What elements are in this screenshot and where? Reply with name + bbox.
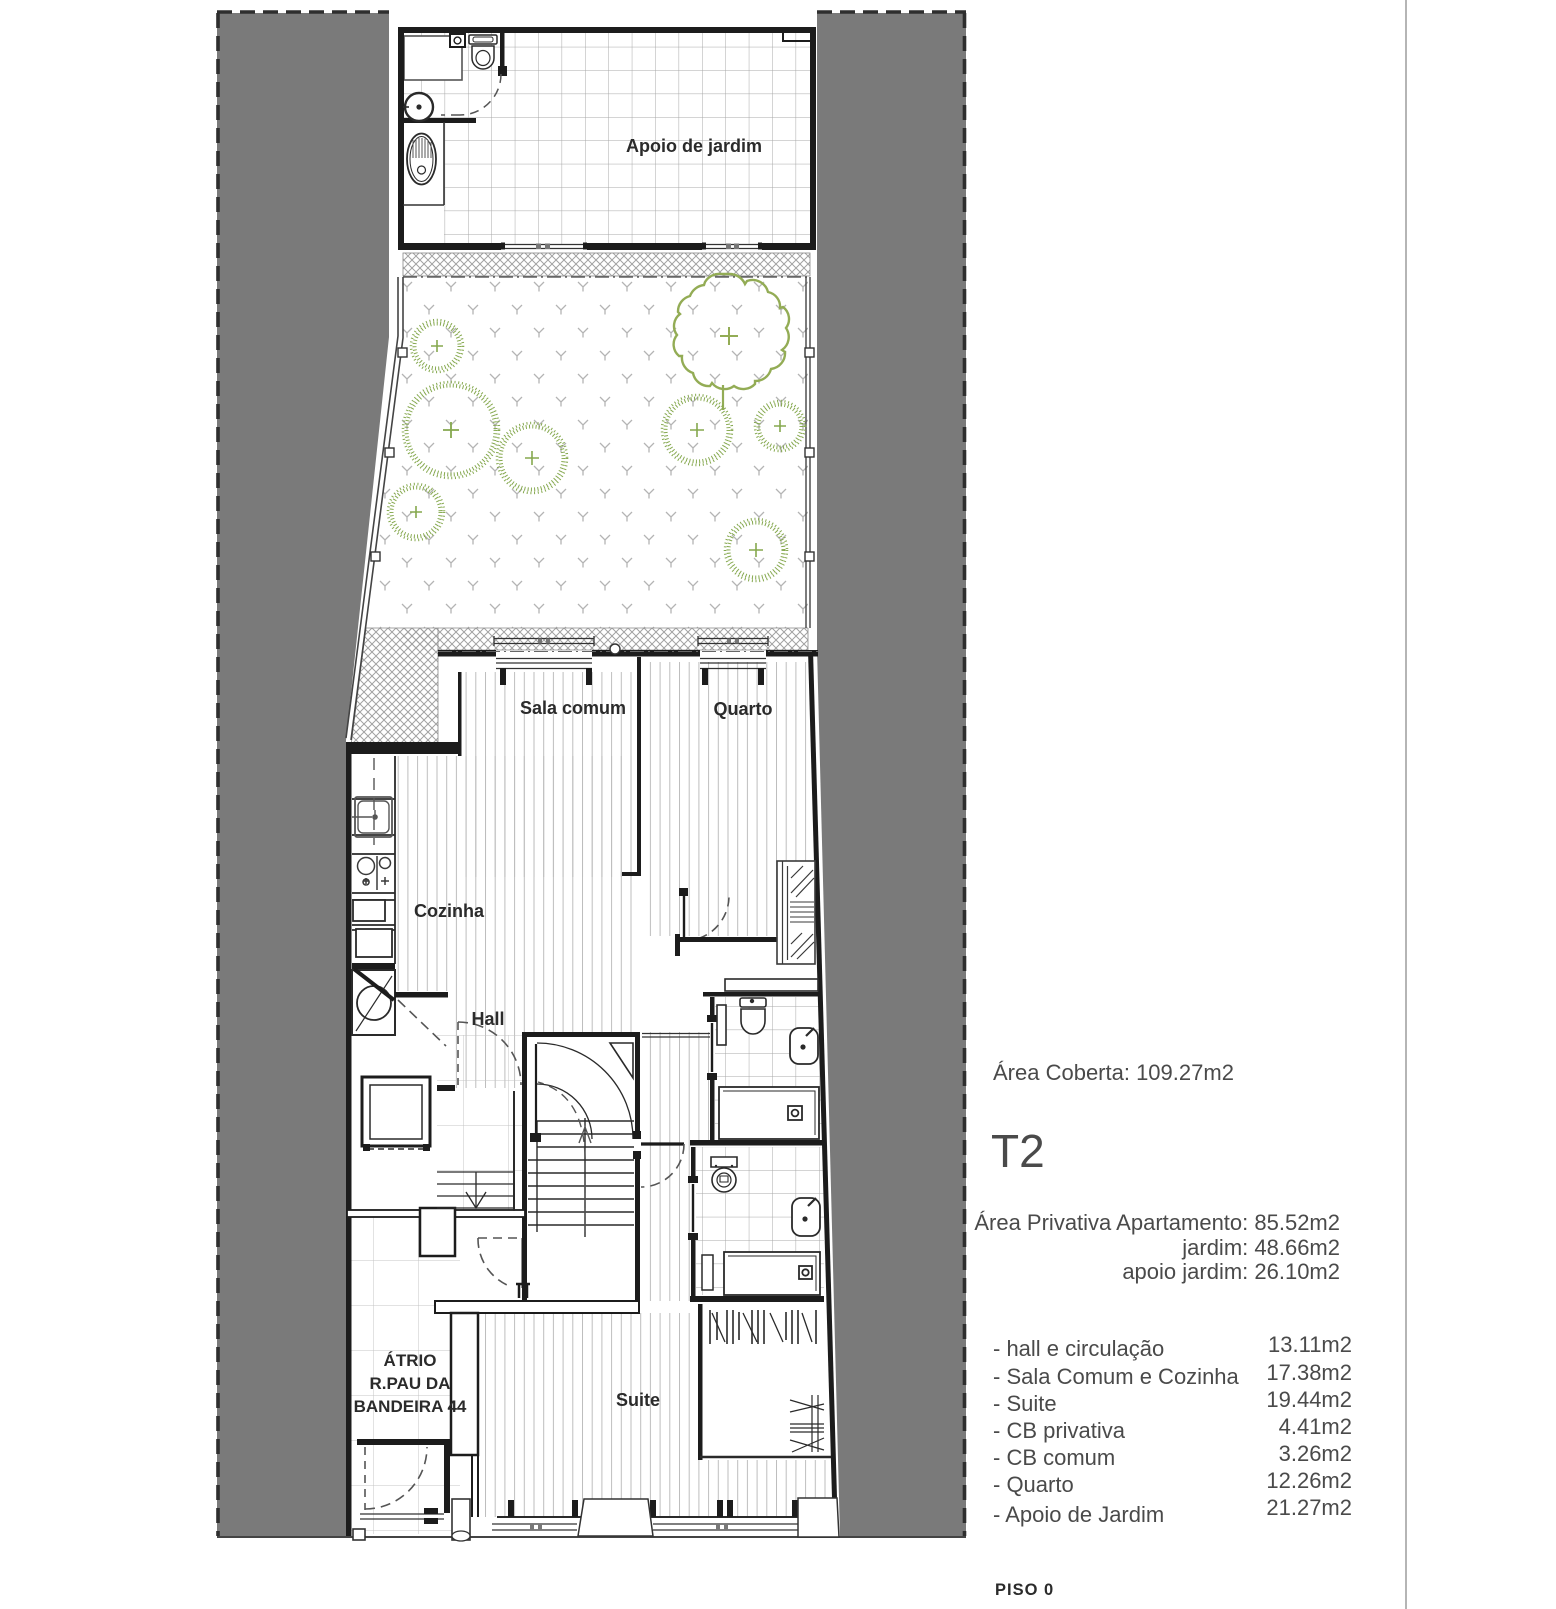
svg-text:R.PAU DA: R.PAU DA xyxy=(370,1374,451,1393)
svg-text:Apoio de jardim: Apoio de jardim xyxy=(626,136,762,156)
svg-text:apoio jardim: 26.10m2: apoio jardim: 26.10m2 xyxy=(1122,1259,1340,1284)
svg-text:BANDEIRA 44: BANDEIRA 44 xyxy=(354,1397,467,1416)
svg-text:Área Coberta: 109.27m2: Área Coberta: 109.27m2 xyxy=(993,1060,1234,1085)
svg-text:3.26m2: 3.26m2 xyxy=(1279,1441,1352,1466)
svg-text:19.44m2: 19.44m2 xyxy=(1266,1387,1352,1412)
svg-text:- Suite: - Suite xyxy=(993,1391,1057,1416)
svg-text:Hall: Hall xyxy=(471,1009,504,1029)
svg-text:ÁTRIO: ÁTRIO xyxy=(384,1351,437,1370)
svg-text:Sala comum: Sala comum xyxy=(520,698,626,718)
svg-text:12.26m2: 12.26m2 xyxy=(1266,1468,1352,1493)
svg-text:Área Privativa Apartamento: 85: Área Privativa Apartamento: 85.52m2 xyxy=(974,1210,1340,1235)
svg-text:T2: T2 xyxy=(991,1125,1045,1177)
svg-text:- Quarto: - Quarto xyxy=(993,1472,1074,1497)
svg-text:17.38m2: 17.38m2 xyxy=(1266,1360,1352,1385)
svg-text:21.27m2: 21.27m2 xyxy=(1266,1495,1352,1520)
svg-text:- CB privativa: - CB privativa xyxy=(993,1418,1126,1443)
svg-text:Quarto: Quarto xyxy=(713,699,772,719)
svg-text:Cozinha: Cozinha xyxy=(414,901,485,921)
svg-text:- CB comum: - CB comum xyxy=(993,1445,1115,1470)
svg-text:4.41m2: 4.41m2 xyxy=(1279,1414,1352,1439)
svg-text:Suite: Suite xyxy=(616,1390,660,1410)
svg-text:PISO 0: PISO 0 xyxy=(995,1581,1054,1599)
svg-text:13.11m2: 13.11m2 xyxy=(1268,1332,1352,1357)
svg-text:- Apoio de Jardim: - Apoio de Jardim xyxy=(993,1502,1164,1527)
svg-text:jardim: 48.66m2: jardim: 48.66m2 xyxy=(1181,1235,1340,1260)
svg-text:- Sala Comum e Cozinha: - Sala Comum e Cozinha xyxy=(993,1364,1240,1389)
svg-text:- hall e circulação: - hall e circulação xyxy=(993,1336,1164,1361)
